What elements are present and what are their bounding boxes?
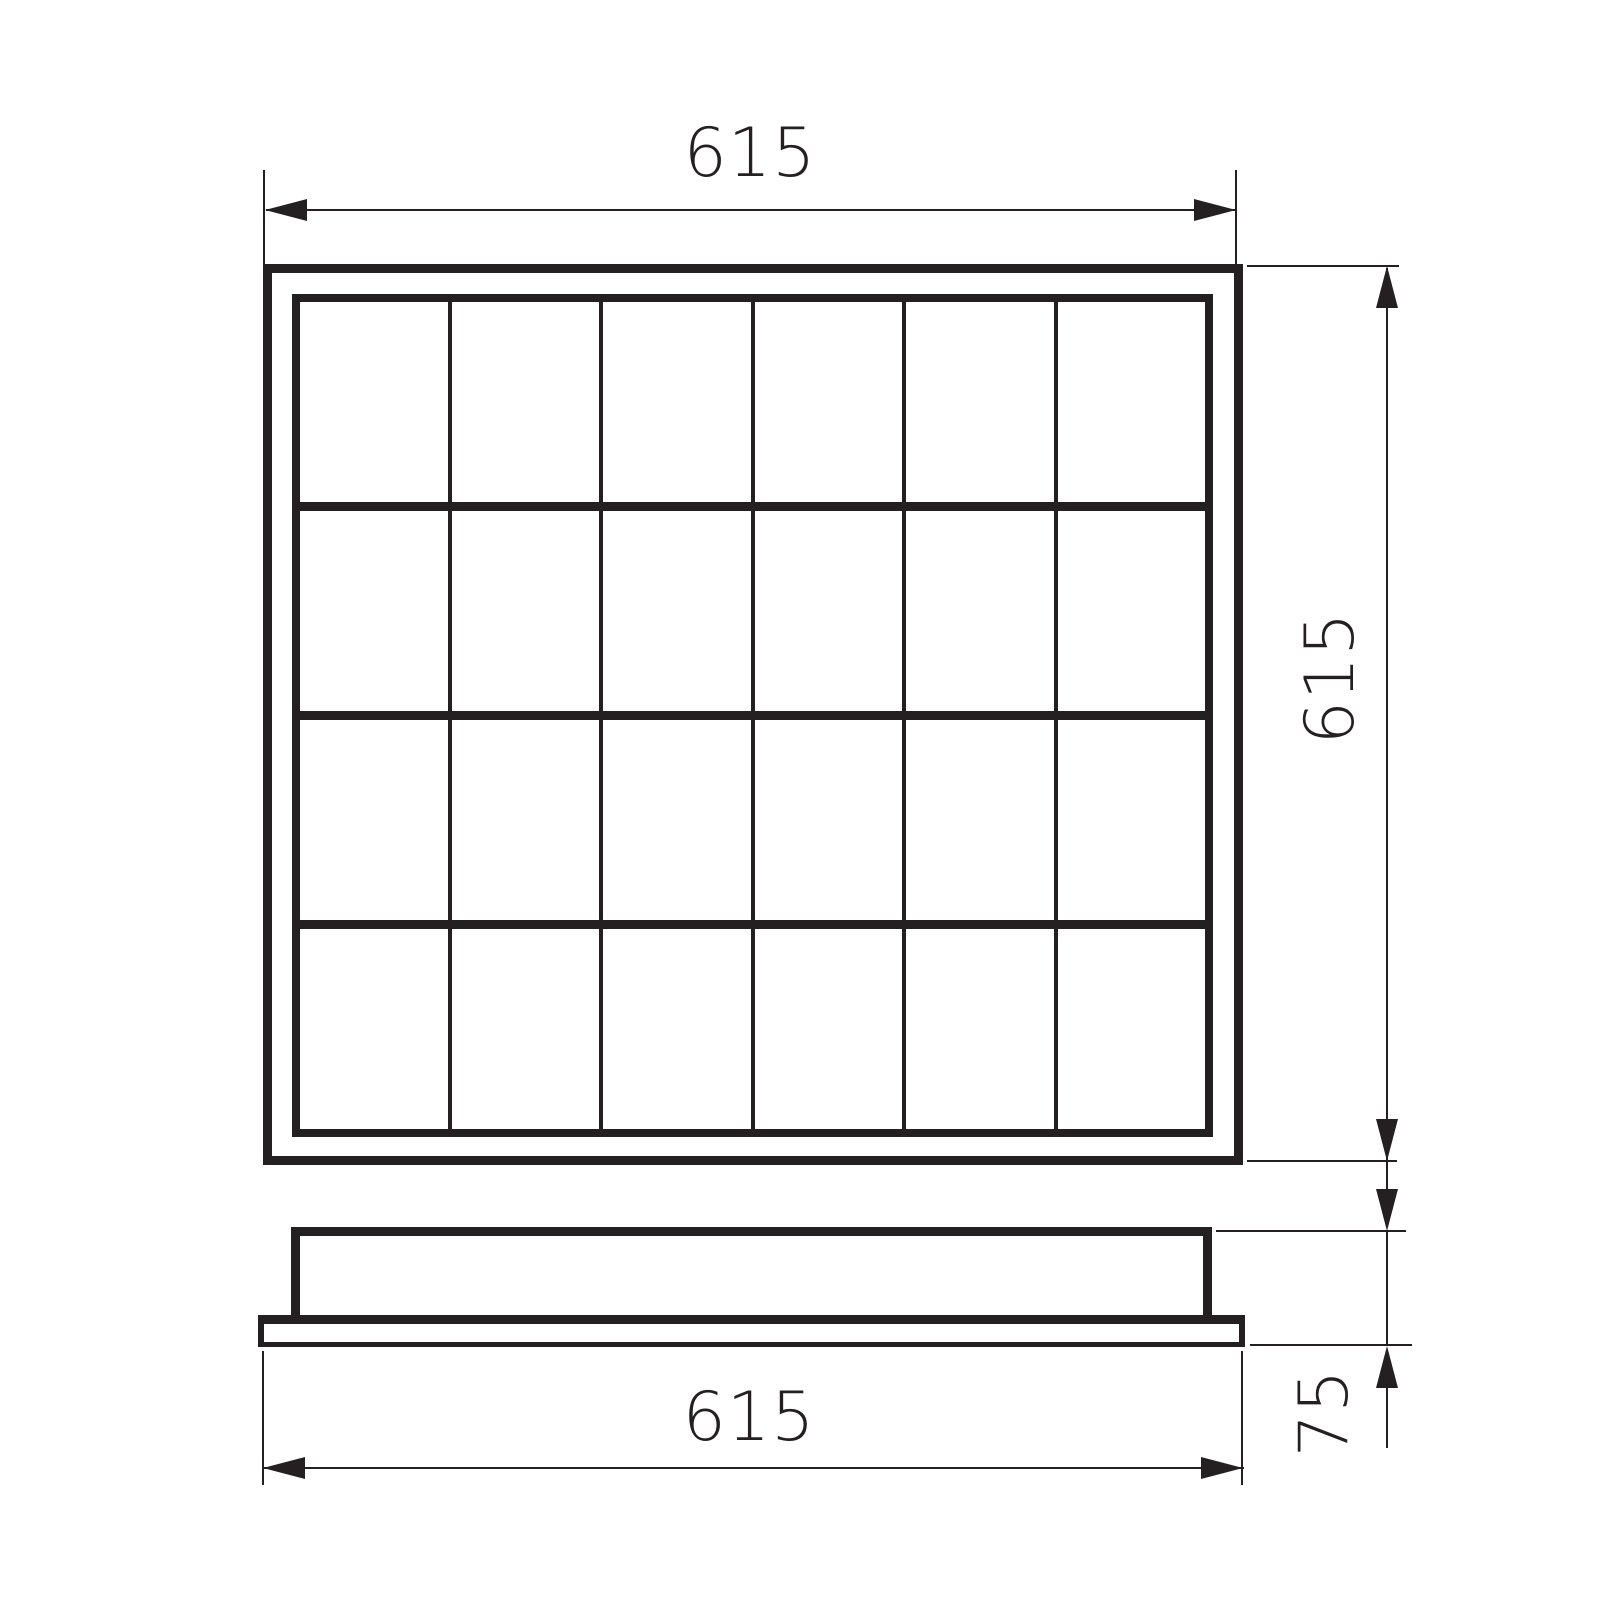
extension-line-right-bottom bbox=[1247, 1160, 1397, 1162]
arrowhead-left-icon bbox=[265, 199, 307, 221]
louvre-grid-cell bbox=[300, 511, 448, 711]
louvre-grid-cell bbox=[452, 720, 600, 920]
louvre-grid-cell bbox=[603, 302, 751, 502]
arrow-shaft-below bbox=[1386, 1388, 1388, 1448]
louvre-grid-cell bbox=[906, 929, 1054, 1129]
louvre-grid-cell bbox=[1058, 511, 1206, 711]
louvre-grid-cell bbox=[1058, 720, 1206, 920]
arrow-shaft-above bbox=[1386, 1162, 1388, 1192]
louvre-grid-cell bbox=[1058, 929, 1206, 1129]
dim-label-right-height: 615 bbox=[1295, 528, 1367, 828]
louvre-grid-cell bbox=[755, 511, 903, 711]
side-view-body bbox=[291, 1227, 1212, 1320]
dimension-line-right-height bbox=[1386, 268, 1388, 1160]
louvre-grid-cell bbox=[906, 302, 1054, 502]
arrowhead-left-icon bbox=[263, 1457, 305, 1479]
louvre-grid-cell bbox=[452, 929, 600, 1129]
dimension-line-side-height bbox=[1386, 1232, 1388, 1344]
louvre-grid-cell bbox=[906, 720, 1054, 920]
louvre-grid-cell bbox=[603, 720, 751, 920]
dim-label-bottom-width: 615 bbox=[599, 1382, 899, 1454]
louvre-grid-cell bbox=[300, 302, 448, 502]
louvre-grid-cell bbox=[906, 511, 1054, 711]
technical-drawing-canvas: 615 615 75 615 bbox=[0, 0, 1599, 1600]
arrowhead-down-icon bbox=[1376, 1119, 1398, 1161]
louvre-grid-cell bbox=[603, 929, 751, 1129]
arrowhead-up-icon bbox=[1376, 266, 1398, 308]
louvre-grid-cell bbox=[452, 302, 600, 502]
louvre-grid-cell bbox=[755, 720, 903, 920]
dimension-line-top-width bbox=[266, 209, 1236, 211]
dim-label-side-height: 75 bbox=[1289, 1263, 1361, 1563]
louvre-grid-cell bbox=[300, 929, 448, 1129]
arrowhead-right-icon bbox=[1201, 1457, 1243, 1479]
louvre-grid-cell bbox=[603, 511, 751, 711]
louvre-grid-cell bbox=[452, 511, 600, 711]
louvre-grid-cell bbox=[755, 302, 903, 502]
arrowhead-right-icon bbox=[1194, 199, 1236, 221]
arrowhead-up-icon bbox=[1376, 1346, 1398, 1388]
louvre-grid-cell bbox=[755, 929, 903, 1129]
louvre-grid-cell bbox=[1058, 302, 1206, 502]
louvre-grid-cell bbox=[300, 720, 448, 920]
dim-label-top-width: 615 bbox=[600, 118, 900, 190]
top-view-louvre-grid bbox=[292, 294, 1213, 1137]
arrowhead-down-icon bbox=[1376, 1189, 1398, 1231]
side-view-flange bbox=[258, 1315, 1245, 1347]
dimension-line-bottom-width bbox=[264, 1467, 1244, 1469]
